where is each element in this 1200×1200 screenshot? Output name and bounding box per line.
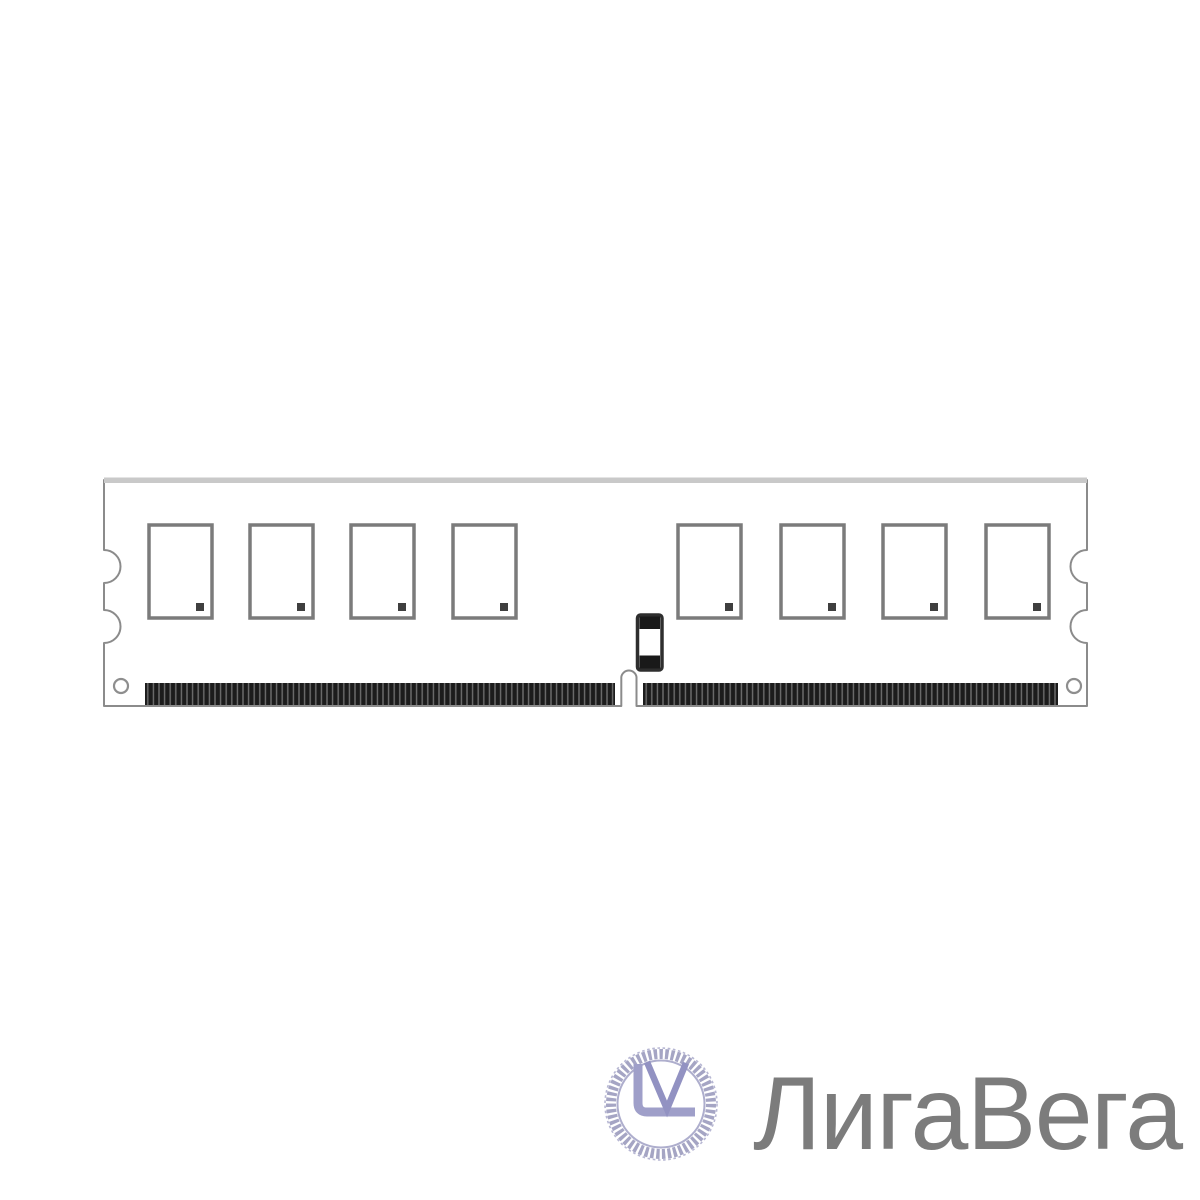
- ram-module-diagram: [103, 477, 1088, 710]
- pcb-top-edge: [104, 478, 1087, 484]
- pin-row-left: [145, 683, 615, 705]
- spd-chip: [638, 615, 663, 670]
- mount-hole-right: [1067, 679, 1081, 693]
- pin-row-right: [643, 683, 1058, 705]
- brand-logo-icon: [603, 1046, 719, 1162]
- lv-monogram: [638, 1062, 695, 1112]
- mount-hole-left: [114, 679, 128, 693]
- watermark: ЛигаВега: [603, 1046, 1182, 1162]
- brand-name: ЛигаВега: [753, 1062, 1182, 1166]
- product-image-canvas: ЛигаВега: [0, 0, 1200, 1200]
